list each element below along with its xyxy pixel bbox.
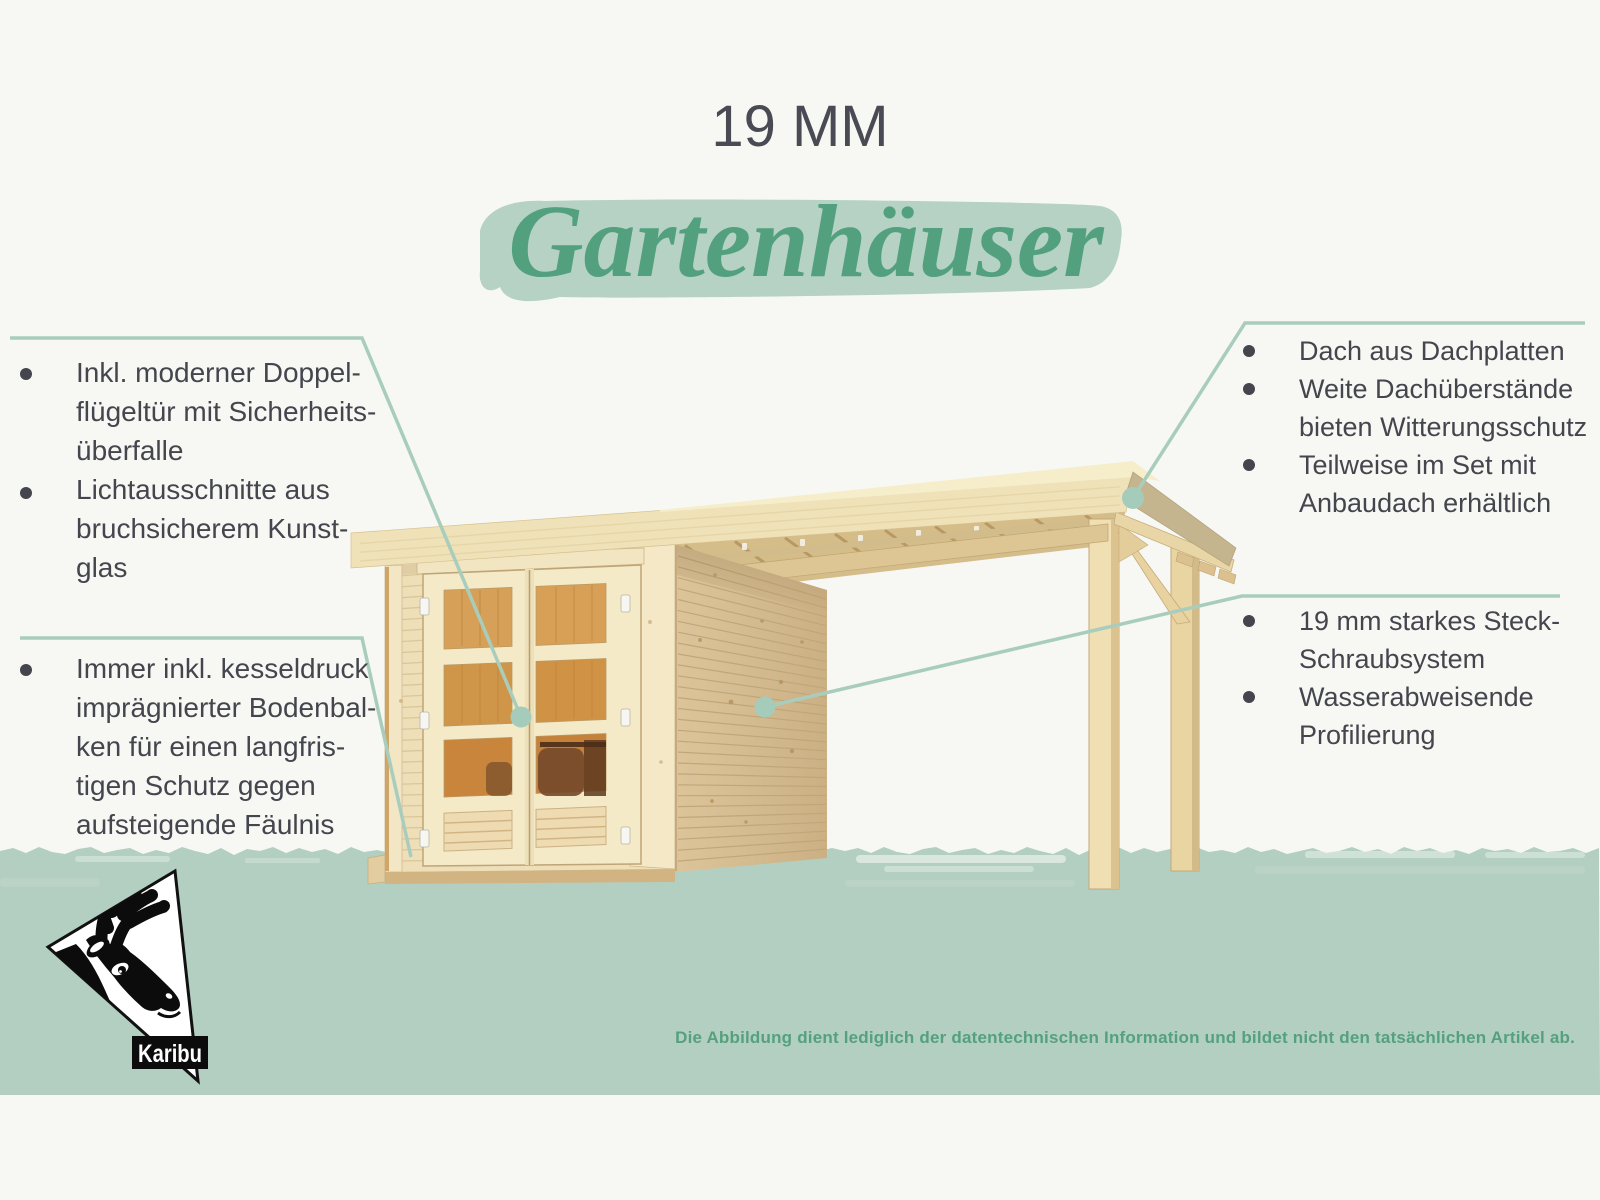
svg-text:Karibu: Karibu [138,1040,202,1068]
svg-text:Gartenhäuser: Gartenhäuser [508,184,1105,299]
